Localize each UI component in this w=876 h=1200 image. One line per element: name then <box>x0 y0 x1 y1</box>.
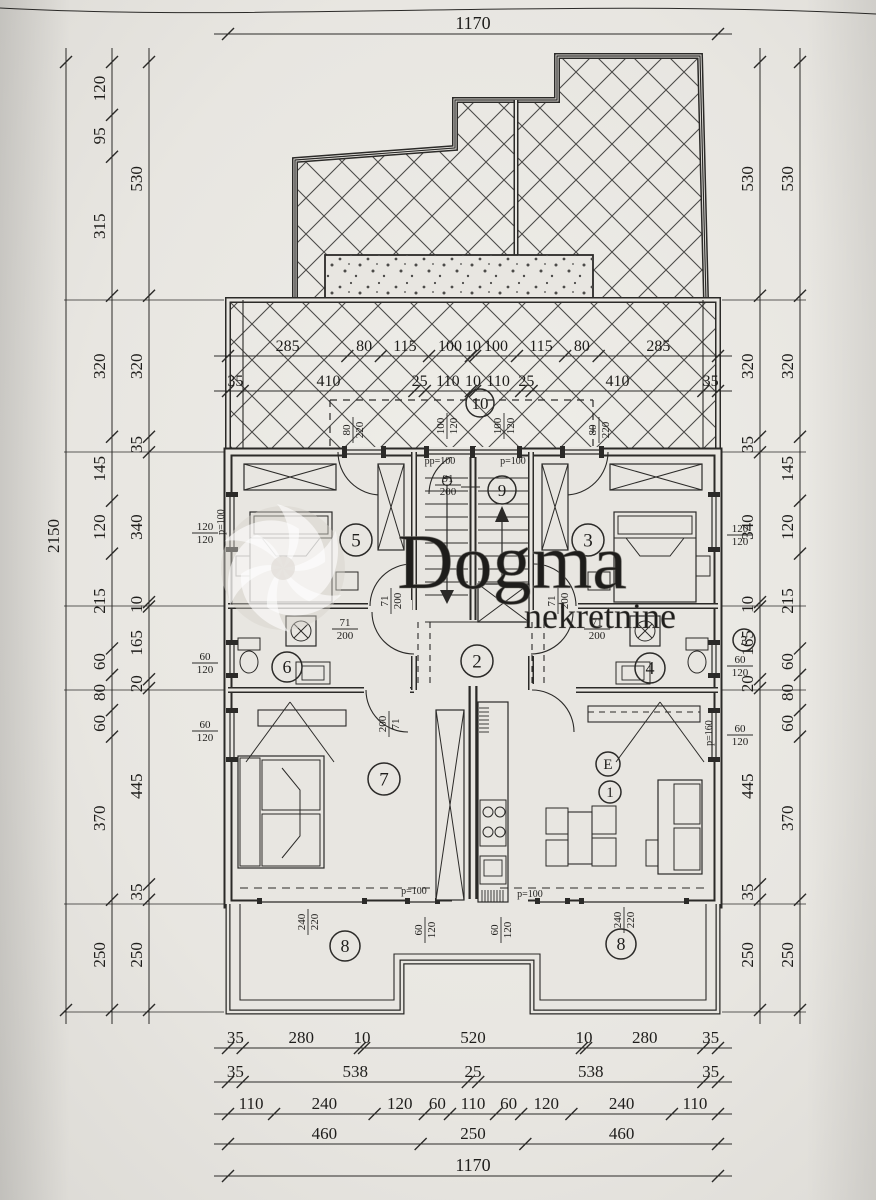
dim-label: 1170 <box>455 1155 490 1175</box>
dim-label: 120 <box>197 521 214 533</box>
dim-label: 10 <box>575 1028 592 1047</box>
dim-label: p=100 <box>517 889 543 900</box>
dim-label: 200 <box>377 715 389 732</box>
dim-label: 250 <box>90 942 109 968</box>
dim-label: 120 <box>197 664 214 676</box>
photo-vignette-right <box>806 0 876 1200</box>
dim-label: 215 <box>90 588 109 614</box>
dim-label: 80 <box>778 684 797 701</box>
dim-label: 35 <box>738 436 757 453</box>
dim-label: E <box>603 757 612 773</box>
dim-label: 60 <box>500 1094 517 1113</box>
dim-label: 35 <box>738 884 757 901</box>
dim-label: 165 <box>127 630 146 656</box>
dim-label: 80 <box>587 424 599 436</box>
dim-label: 320 <box>778 353 797 379</box>
dim-label: 240 <box>609 1094 635 1113</box>
dim-label: 60 <box>200 651 212 663</box>
dim-label: 60 <box>778 715 797 732</box>
dim-label: 71 <box>340 617 351 629</box>
dim-label: 200 <box>440 486 457 498</box>
dim-label: 445 <box>738 773 757 799</box>
dim-label: 110 <box>461 1094 486 1113</box>
dim-label: 320 <box>738 353 757 379</box>
dim-label: 35 <box>127 884 146 901</box>
dim-label: 35 <box>227 1028 244 1047</box>
dim-label: 35 <box>127 436 146 453</box>
dim-label: 410 <box>605 373 629 390</box>
dim-label: 10 <box>354 1028 371 1047</box>
dim-label: 520 <box>460 1028 486 1047</box>
floor-plan-canvas: 2150120953153201451202156080603702505303… <box>0 0 876 1200</box>
dim-label: 285 <box>646 338 670 355</box>
concrete-strip <box>325 255 593 300</box>
dim-label: 120 <box>732 667 749 679</box>
dim-label: 250 <box>738 942 757 968</box>
dim-label: 5 <box>351 530 361 551</box>
dim-label: 538 <box>342 1062 368 1081</box>
dim-label: 530 <box>778 166 797 192</box>
dim-label: 240 <box>612 911 624 928</box>
dim-label: 60 <box>778 653 797 670</box>
dim-label: 60 <box>429 1094 446 1113</box>
dim-label: 60 <box>200 719 212 731</box>
dim-label: 200 <box>337 630 354 642</box>
dim-label: 1 <box>606 785 614 801</box>
watermark-brand: Dogma <box>397 518 627 605</box>
dim-label: 60 <box>735 654 747 666</box>
dim-label: 445 <box>127 773 146 799</box>
dim-label: 250 <box>127 942 146 968</box>
dim-label: 35 <box>227 1062 244 1081</box>
dim-label: 80 <box>574 338 590 355</box>
dim-label: 1170 <box>455 13 490 33</box>
dim-label: 120 <box>732 523 749 535</box>
dim-label: 120 <box>505 417 517 434</box>
dim-label: 110 <box>436 373 459 390</box>
dim-label: 120 <box>502 921 514 938</box>
dim-label: 60 <box>90 715 109 732</box>
dim-label: 320 <box>127 353 146 379</box>
dim-label: 120 <box>778 514 797 540</box>
dim-label: 220 <box>625 911 637 928</box>
dim-label: 71 <box>390 719 402 730</box>
dim-label: pp=100 <box>425 456 456 467</box>
dim-label: 120 <box>448 417 460 434</box>
dim-label: 320 <box>90 353 109 379</box>
dim-label: 35 <box>702 1028 719 1047</box>
dim-label: 460 <box>609 1124 635 1143</box>
dim-label: 10 <box>738 596 757 613</box>
dim-label: 25 <box>465 1062 482 1081</box>
dim-label: 10 <box>465 338 481 355</box>
dim-label: 250 <box>460 1124 486 1143</box>
dim-label: 220 <box>600 421 612 438</box>
dim-label: p=160 <box>704 720 715 746</box>
dim-label: 100 <box>438 338 462 355</box>
dim-label: p=100 <box>216 509 227 535</box>
dim-label: 9 <box>498 481 507 500</box>
dim-label: 35 <box>702 1062 719 1081</box>
dim-label: 220 <box>309 913 321 930</box>
dim-label: 80 <box>341 424 353 436</box>
dim-label: 340 <box>127 514 146 540</box>
dim-label: 280 <box>289 1028 315 1047</box>
dim-label: 60 <box>489 924 501 936</box>
dim-label: 7 <box>379 769 389 790</box>
dim-label: 10 <box>472 394 489 413</box>
dim-label: 120 <box>534 1094 560 1113</box>
dim-label: p=100 <box>500 456 526 467</box>
dim-label: 91 <box>443 473 454 485</box>
dim-label: 538 <box>578 1062 604 1081</box>
dim-label: 530 <box>127 166 146 192</box>
dim-label: 280 <box>632 1028 658 1047</box>
dim-label: 71 <box>379 596 391 607</box>
dim-label: 410 <box>317 373 341 390</box>
dim-label: 60 <box>90 653 109 670</box>
dim-label: 95 <box>90 127 109 144</box>
dim-label: 120 <box>426 921 438 938</box>
dim-label: 120 <box>732 736 749 748</box>
dim-label: 315 <box>90 213 109 239</box>
dim-label: 220 <box>354 421 366 438</box>
dim-label: 145 <box>778 456 797 482</box>
dim-label: 100 <box>435 417 447 434</box>
dim-label: 10 <box>465 373 481 390</box>
dim-label: 120 <box>90 76 109 102</box>
floor-plan-sheet: 2150120953153201451202156080603702505303… <box>0 0 876 1200</box>
dim-label: 100 <box>484 338 508 355</box>
dim-label: 240 <box>296 913 308 930</box>
dim-label: 110 <box>683 1094 708 1113</box>
dim-label: 370 <box>90 805 109 831</box>
dim-label: 460 <box>312 1124 338 1143</box>
dim-label: 120 <box>732 536 749 548</box>
dim-label: 10 <box>127 596 146 613</box>
dim-label: 145 <box>90 456 109 482</box>
dim-label: 120 <box>387 1094 413 1113</box>
dim-label: 3 <box>741 634 748 649</box>
dim-label: 6 <box>283 657 292 677</box>
dim-label: 25 <box>412 373 428 390</box>
dim-label: 20 <box>127 675 146 692</box>
dim-label: 25 <box>518 373 534 390</box>
dim-label: 80 <box>90 684 109 701</box>
dim-label: 250 <box>778 942 797 968</box>
dim-label: 35 <box>703 373 719 390</box>
dim-label: 115 <box>529 338 552 355</box>
dim-label: 8 <box>617 934 626 954</box>
dim-label: 35 <box>227 373 243 390</box>
dim-label: 110 <box>239 1094 264 1113</box>
dim-label: 120 <box>197 534 214 546</box>
dim-label: 100 <box>492 417 504 434</box>
dim-label: 60 <box>413 924 425 936</box>
dim-label: 370 <box>778 805 797 831</box>
dim-label: 110 <box>486 373 509 390</box>
watermark-subtitle: nekretnine <box>524 596 676 636</box>
dim-label: 285 <box>276 338 300 355</box>
dim-label: 8 <box>341 936 350 956</box>
dim-label: 60 <box>735 723 747 735</box>
dim-label: 240 <box>312 1094 338 1113</box>
dim-label: 2 <box>472 651 482 672</box>
dim-label: p=100 <box>401 886 427 897</box>
dim-label: 530 <box>738 166 757 192</box>
dim-label: 120 <box>90 514 109 540</box>
dim-label: 80 <box>356 338 372 355</box>
dim-label: 120 <box>197 732 214 744</box>
dim-label: 215 <box>778 588 797 614</box>
dim-label: 4 <box>646 658 655 678</box>
dim-label: 115 <box>393 338 416 355</box>
photo-vignette-left <box>0 0 70 1200</box>
